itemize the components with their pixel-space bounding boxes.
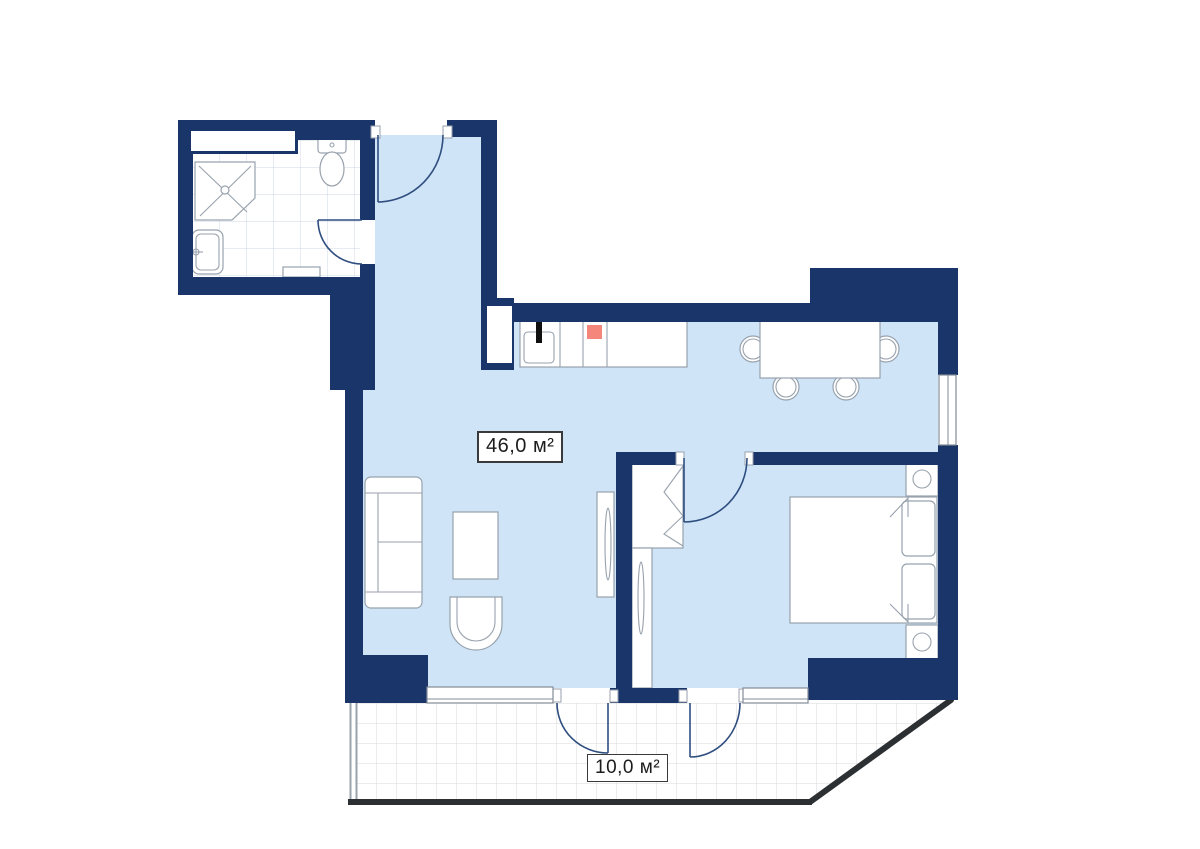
kitchen <box>520 317 687 367</box>
wall-bottom-left-block <box>345 655 428 703</box>
living-area-label: 46,0 м² <box>477 431 563 463</box>
tv-console <box>597 492 614 597</box>
sliding-panel <box>632 548 652 688</box>
coffee-table <box>453 512 498 579</box>
jamb-cap <box>679 690 687 702</box>
balcony <box>348 700 951 805</box>
floor-plan-svg <box>0 0 1200 849</box>
wall-bedroom-top-right <box>747 452 938 465</box>
sofa <box>365 477 422 608</box>
wall-hall-left-pillar <box>330 295 375 390</box>
stove <box>587 325 602 339</box>
jamb-cap <box>553 689 561 702</box>
balcony-floor-tiles <box>356 703 949 802</box>
window-bedroom-balcony <box>743 688 808 703</box>
wall-bathroom-right-lower <box>360 264 375 295</box>
nightstand <box>906 625 938 659</box>
balcony-area-label: 10,0 м² <box>587 754 668 782</box>
wall-left <box>345 388 363 655</box>
bathroom-window-niche <box>191 131 295 151</box>
nightstand <box>906 462 938 496</box>
wall-partition-bottom-block <box>610 688 687 703</box>
bed <box>790 497 937 623</box>
hallway-floor <box>375 135 483 322</box>
wall-hall-right <box>481 120 497 322</box>
window-right-wall <box>939 375 956 445</box>
toilet <box>318 137 346 186</box>
bath-mat <box>283 267 320 277</box>
balcony-railing-bottom <box>348 799 812 805</box>
pillow <box>902 501 935 556</box>
wall-right-upper <box>938 303 958 375</box>
wall-bathroom-left <box>178 120 193 295</box>
dining-table <box>760 318 880 378</box>
wall-partition <box>616 452 632 688</box>
window-living-balcony <box>427 687 553 703</box>
kitchen-faucet <box>536 321 542 343</box>
vent-shaft-niche <box>487 306 512 363</box>
floor-plan: 46,0 м² 10,0 м² <box>0 0 1200 849</box>
wall-bathroom-bottom <box>178 277 375 295</box>
jamb-cap <box>610 690 618 702</box>
wall-kitchen-top <box>497 303 940 322</box>
pillow <box>902 564 935 619</box>
kitchen-counter <box>520 317 687 367</box>
armchair <box>450 597 502 650</box>
wall-bedroom-bottom-thick <box>808 658 938 687</box>
shower <box>195 162 255 220</box>
jamb-cap <box>443 126 452 138</box>
wall-bedroom-top-left <box>616 452 683 465</box>
wardrobe <box>632 463 683 548</box>
jamb-cap <box>676 452 684 465</box>
wall-top-right-protrusion <box>810 268 958 303</box>
shower-drain <box>221 186 229 194</box>
wall-bedroom-bottom <box>808 687 950 700</box>
wall-right-lower <box>938 445 958 700</box>
bathroom-sink <box>189 230 223 274</box>
